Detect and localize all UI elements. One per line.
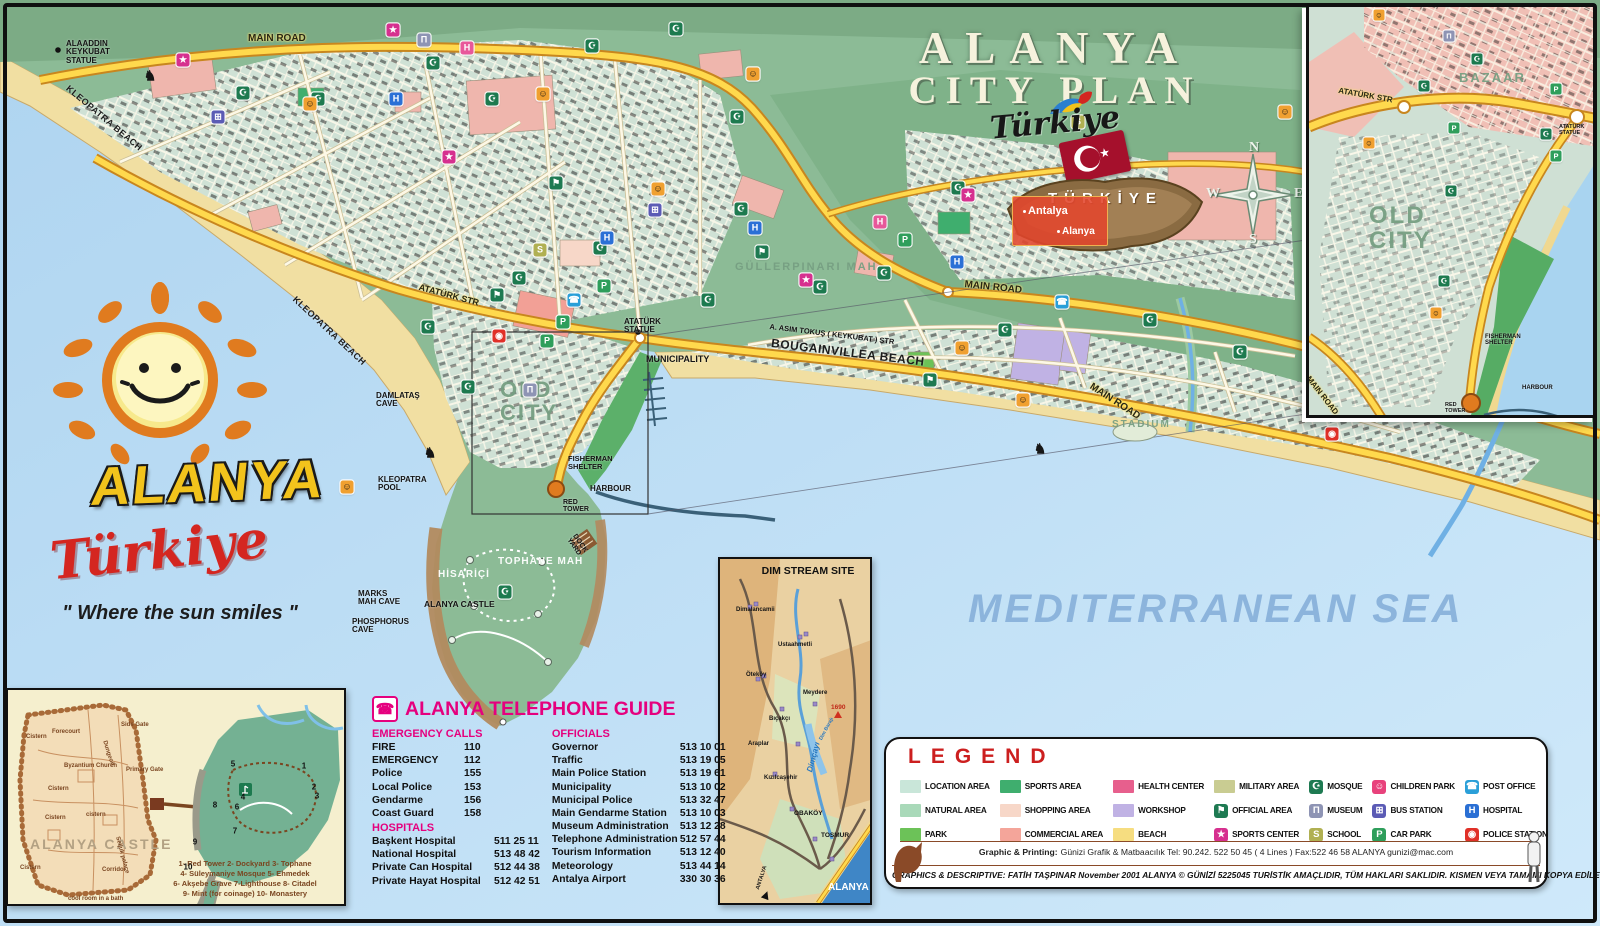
telephone-icon: ☎	[372, 696, 398, 722]
phone-entry: Traffic513 19 05	[552, 754, 726, 767]
legend-item: SPORTS AREA	[1000, 775, 1103, 798]
police-station-icon: ◉	[1465, 828, 1479, 842]
legend-label: OFFICIAL AREA	[1232, 806, 1292, 815]
phone-entry: National Hospital513 48 42	[372, 848, 540, 861]
castle-inset-title: ALANYA CASTLE	[30, 836, 172, 852]
phone-entry: Meteorology513 44 14	[552, 860, 726, 873]
alanya-city-plan-map: MAIN ROADMAIN ROADMAIN ROADATATÜRK STRKL…	[0, 0, 1600, 926]
legend-label: SPORTS CENTER	[1232, 830, 1299, 839]
phone-entry: EMERGENCY112	[372, 754, 540, 767]
legend-swatch	[1000, 828, 1021, 841]
legend-label: BEACH	[1138, 830, 1166, 839]
legend-swatch	[1000, 804, 1021, 817]
castle-numbered-key: 1- Red Tower 2- Dockyard 3- Tophane4- Sü…	[152, 859, 338, 900]
phone-entry: Telephone Administration512 57 44	[552, 833, 726, 846]
legend-grid: LOCATION AREA NATURAL AREA PARK SPORTS A…	[900, 775, 1548, 846]
castle-key-line: 6- Akşebe Grave 7-Lighthouse 8- Citadel	[152, 879, 338, 889]
telephone-guide-title: ALANYA TELEPHONE GUIDE	[405, 698, 676, 721]
legend-item: SHOPPING AREA	[1000, 799, 1103, 822]
mosque-icon: ☪	[1309, 780, 1323, 794]
legend-swatch	[1113, 828, 1134, 841]
printing-credit: Graphic & Printing:Günizi Grafik & Matba…	[900, 841, 1532, 857]
phone-entry: Tourism Information513 12 40	[552, 846, 726, 859]
copyright-credit: GRAPHICS & DESCRIPTIVE: FATİH TAŞPINAR N…	[892, 865, 1540, 880]
legend-item: Π MUSEUM	[1309, 799, 1362, 822]
bus-station-icon: ⊞	[1372, 804, 1386, 818]
phone-entry: Coast Guard158	[372, 807, 540, 820]
old-city-inset: ATATÜRK STRBAZAAROLD CITYATATÜRK STATUEF…	[1306, 4, 1596, 418]
legend-label: NATURAL AREA	[925, 806, 987, 815]
legend-item: MILITARY AREA	[1214, 775, 1299, 798]
legend-label: PARK	[925, 830, 947, 839]
legend-label: WORKSHOP	[1138, 806, 1186, 815]
phone-entry: Main Gendarme Station513 10 03	[552, 807, 726, 820]
emergency-calls-heading: EMERGENCY CALLS	[372, 728, 540, 740]
hospitals-list: Başkent Hospital511 25 11National Hospit…	[372, 835, 540, 888]
castle-key-line: 9- Mint (for coinage) 10- Monastery	[152, 889, 338, 899]
legend-label: LOCATION AREA	[925, 782, 990, 791]
school-icon: S	[1309, 828, 1323, 842]
phone-entry: Police155	[372, 767, 540, 780]
legend-swatch	[900, 828, 921, 841]
official-area-icon: ⚑	[1214, 804, 1228, 818]
post-office-icon: ☎	[1465, 780, 1479, 794]
legend-item: WORKSHOP	[1113, 799, 1204, 822]
dim-inset-title: DIM STREAM SITE	[720, 565, 870, 577]
phone-entry: Main Police Station513 19 61	[552, 767, 726, 780]
legend-label: COMMERCIAL AREA	[1025, 830, 1103, 839]
legend-label: MOSQUE	[1327, 782, 1362, 791]
legend-item: ⚑ OFFICIAL AREA	[1214, 799, 1299, 822]
legend-item: LOCATION AREA	[900, 775, 990, 798]
children-park-icon: ☺	[1372, 780, 1386, 794]
legend-swatch	[1000, 780, 1021, 793]
legend-swatch	[900, 780, 921, 793]
phone-entry: Antalya Airport330 30 36	[552, 873, 726, 886]
dim-stream-inset: DimalancamiiUstaahmetliÖteköyMeydere1690…	[718, 557, 872, 905]
legend-swatch	[1113, 780, 1134, 793]
legend-label: POLICE STATION	[1483, 830, 1548, 839]
legend-label: SPORTS AREA	[1025, 782, 1082, 791]
legend-swatch	[900, 804, 921, 817]
legend-label: HEALTH CENTER	[1138, 782, 1204, 791]
legend-item: NATURAL AREA	[900, 799, 990, 822]
legend-item: ☺ CHILDREN PARK	[1372, 775, 1455, 798]
phone-entry: Local Police153	[372, 781, 540, 794]
legend-label: SHOPPING AREA	[1025, 806, 1091, 815]
telephone-guide: ☎ ALANYA TELEPHONE GUIDE EMERGENCY CALLS…	[372, 696, 704, 888]
phone-entry: FIRE110	[372, 741, 540, 754]
castle-key-line: 1- Red Tower 2- Dockyard 3- Tophane	[152, 859, 338, 869]
phone-entry: Private Hayat Hospital512 42 51	[372, 875, 540, 888]
phone-entry: Private Can Hospital512 44 38	[372, 861, 540, 874]
legend-swatch	[1113, 804, 1134, 817]
alanya-castle-inset: CisternForecourtSide GateDungeonByzantiu…	[6, 688, 346, 906]
phone-entry: Museum Administration513 12 28	[552, 820, 726, 833]
legend-label: MILITARY AREA	[1239, 782, 1299, 791]
officials-heading: OFFICIALS	[552, 728, 726, 740]
legend-label: CHILDREN PARK	[1390, 782, 1455, 791]
legend-label: HOSPITAL	[1483, 806, 1522, 815]
car-park-icon: P	[1372, 828, 1386, 842]
legend-label: POST OFFICE	[1483, 782, 1535, 791]
museum-icon: Π	[1309, 804, 1323, 818]
castle-key-line: 4- Süleymaniye Mosque 5- Ehmedek	[152, 869, 338, 879]
phone-entry: Gendarme156	[372, 794, 540, 807]
legend-label: BUS STATION	[1390, 806, 1442, 815]
legend-item: ⊞ BUS STATION	[1372, 799, 1455, 822]
phone-entry: Başkent Hospital511 25 11	[372, 835, 540, 848]
legend-title: LEGEND	[908, 745, 1056, 769]
phone-entry: Municipality513 10 02	[552, 781, 726, 794]
legend-item: H HOSPITAL	[1465, 799, 1548, 822]
legend-item: ☎ POST OFFICE	[1465, 775, 1548, 798]
hospital-icon: H	[1465, 804, 1479, 818]
legend-label: CAR PARK	[1390, 830, 1431, 839]
legend-panel: LEGEND LOCATION AREA NATURAL AREA PARK	[884, 737, 1548, 889]
hospitals-heading: HOSPITALS	[372, 822, 540, 834]
phone-entry: Municipal Police513 32 47	[552, 794, 726, 807]
phone-entry: Governor513 10 01	[552, 741, 726, 754]
legend-label: MUSEUM	[1327, 806, 1362, 815]
sports-center-icon: ★	[1214, 828, 1228, 842]
legend-label: SCHOOL	[1327, 830, 1361, 839]
legend-swatch	[1214, 780, 1235, 793]
officials-list: Governor513 10 01Traffic513 19 05Main Po…	[552, 741, 726, 886]
legend-item: ☪ MOSQUE	[1309, 775, 1362, 798]
legend-item: HEALTH CENTER	[1113, 775, 1204, 798]
emergency-list: FIRE110EMERGENCY112Police155Local Police…	[372, 741, 540, 820]
old-city-inset-map	[1309, 7, 1596, 418]
dim-inset-map	[720, 559, 872, 905]
